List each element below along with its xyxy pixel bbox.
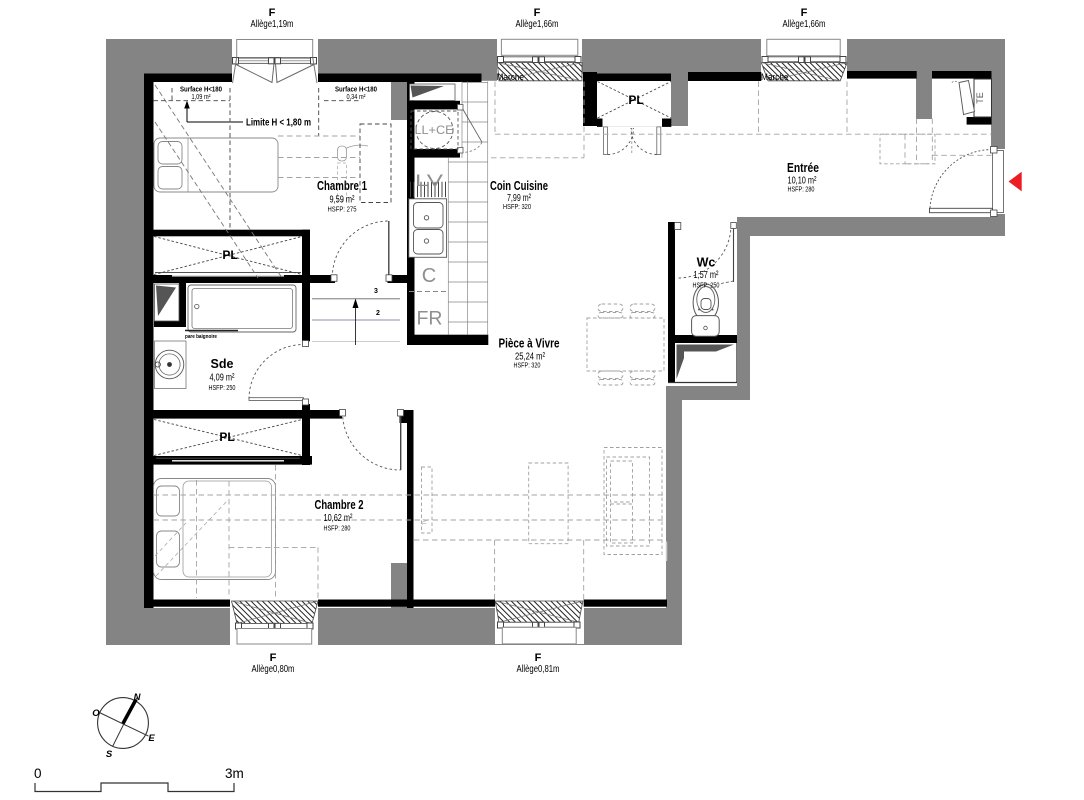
svg-text:Pièce à Vivre: Pièce à Vivre	[499, 337, 560, 351]
svg-text:10,62 m²: 10,62 m²	[324, 513, 353, 524]
svg-text:0,34 m²: 0,34 m²	[347, 94, 367, 101]
svg-text:Allège0,81m: Allège0,81m	[517, 663, 560, 675]
svg-text:HSFP: 280: HSFP: 280	[324, 524, 351, 533]
svg-text:Surface H<180: Surface H<180	[335, 87, 377, 94]
svg-text:2: 2	[376, 310, 380, 317]
svg-text:S: S	[106, 749, 113, 760]
svg-text:HSFP: 280: HSFP: 280	[788, 185, 815, 194]
svg-text:HSFP: 275: HSFP: 275	[328, 205, 357, 214]
svg-text:3m: 3m	[225, 766, 244, 781]
svg-text:N: N	[134, 692, 142, 703]
svg-text:HSFP: 320: HSFP: 320	[503, 202, 531, 211]
svg-text:Entrée: Entrée	[787, 161, 819, 175]
svg-text:O: O	[92, 708, 100, 719]
svg-text:Chambre 2: Chambre 2	[315, 498, 364, 512]
svg-text:PL: PL	[222, 248, 237, 262]
svg-text:C: C	[422, 265, 436, 287]
svg-text:pare baignoire: pare baignoire	[185, 334, 218, 340]
svg-text:Allège1,66m: Allège1,66m	[516, 18, 559, 30]
svg-text:HSFP: 250: HSFP: 250	[209, 383, 236, 392]
svg-text:TV: TV	[423, 518, 429, 525]
svg-text:TE: TE	[975, 92, 985, 104]
svg-text:LV: LV	[415, 171, 444, 190]
svg-text:Allège0,80m: Allège0,80m	[252, 663, 295, 675]
svg-text:Chambre 1: Chambre 1	[317, 179, 367, 193]
svg-text:Allège1,66m: Allège1,66m	[783, 18, 826, 30]
svg-text:3: 3	[374, 288, 378, 295]
svg-text:Coin Cuisine: Coin Cuisine	[490, 179, 548, 193]
svg-text:Limite H < 1,80 m: Limite H < 1,80 m	[246, 118, 311, 129]
svg-text:E: E	[148, 733, 155, 744]
svg-text:Wc: Wc	[697, 256, 716, 270]
svg-text:FR: FR	[417, 309, 443, 330]
svg-text:Marche: Marche	[497, 72, 525, 83]
svg-text:1,57 m²: 1,57 m²	[694, 270, 719, 281]
svg-text:PL: PL	[219, 430, 234, 444]
svg-text:4,09 m²: 4,09 m²	[210, 373, 235, 384]
svg-text:HSFP: 250: HSFP: 250	[693, 281, 720, 290]
svg-text:1,09 m²: 1,09 m²	[192, 94, 212, 101]
svg-text:HSFP: 320: HSFP: 320	[514, 361, 541, 370]
svg-text:Surface H<180: Surface H<180	[180, 87, 222, 94]
svg-text:PL: PL	[628, 93, 643, 107]
svg-text:Sde: Sde	[211, 357, 234, 371]
svg-text:0: 0	[34, 766, 42, 781]
svg-text:Allège1,19m: Allège1,19m	[251, 18, 294, 30]
svg-text:LL+CE: LL+CE	[415, 125, 454, 137]
svg-text:Marche: Marche	[761, 72, 789, 83]
